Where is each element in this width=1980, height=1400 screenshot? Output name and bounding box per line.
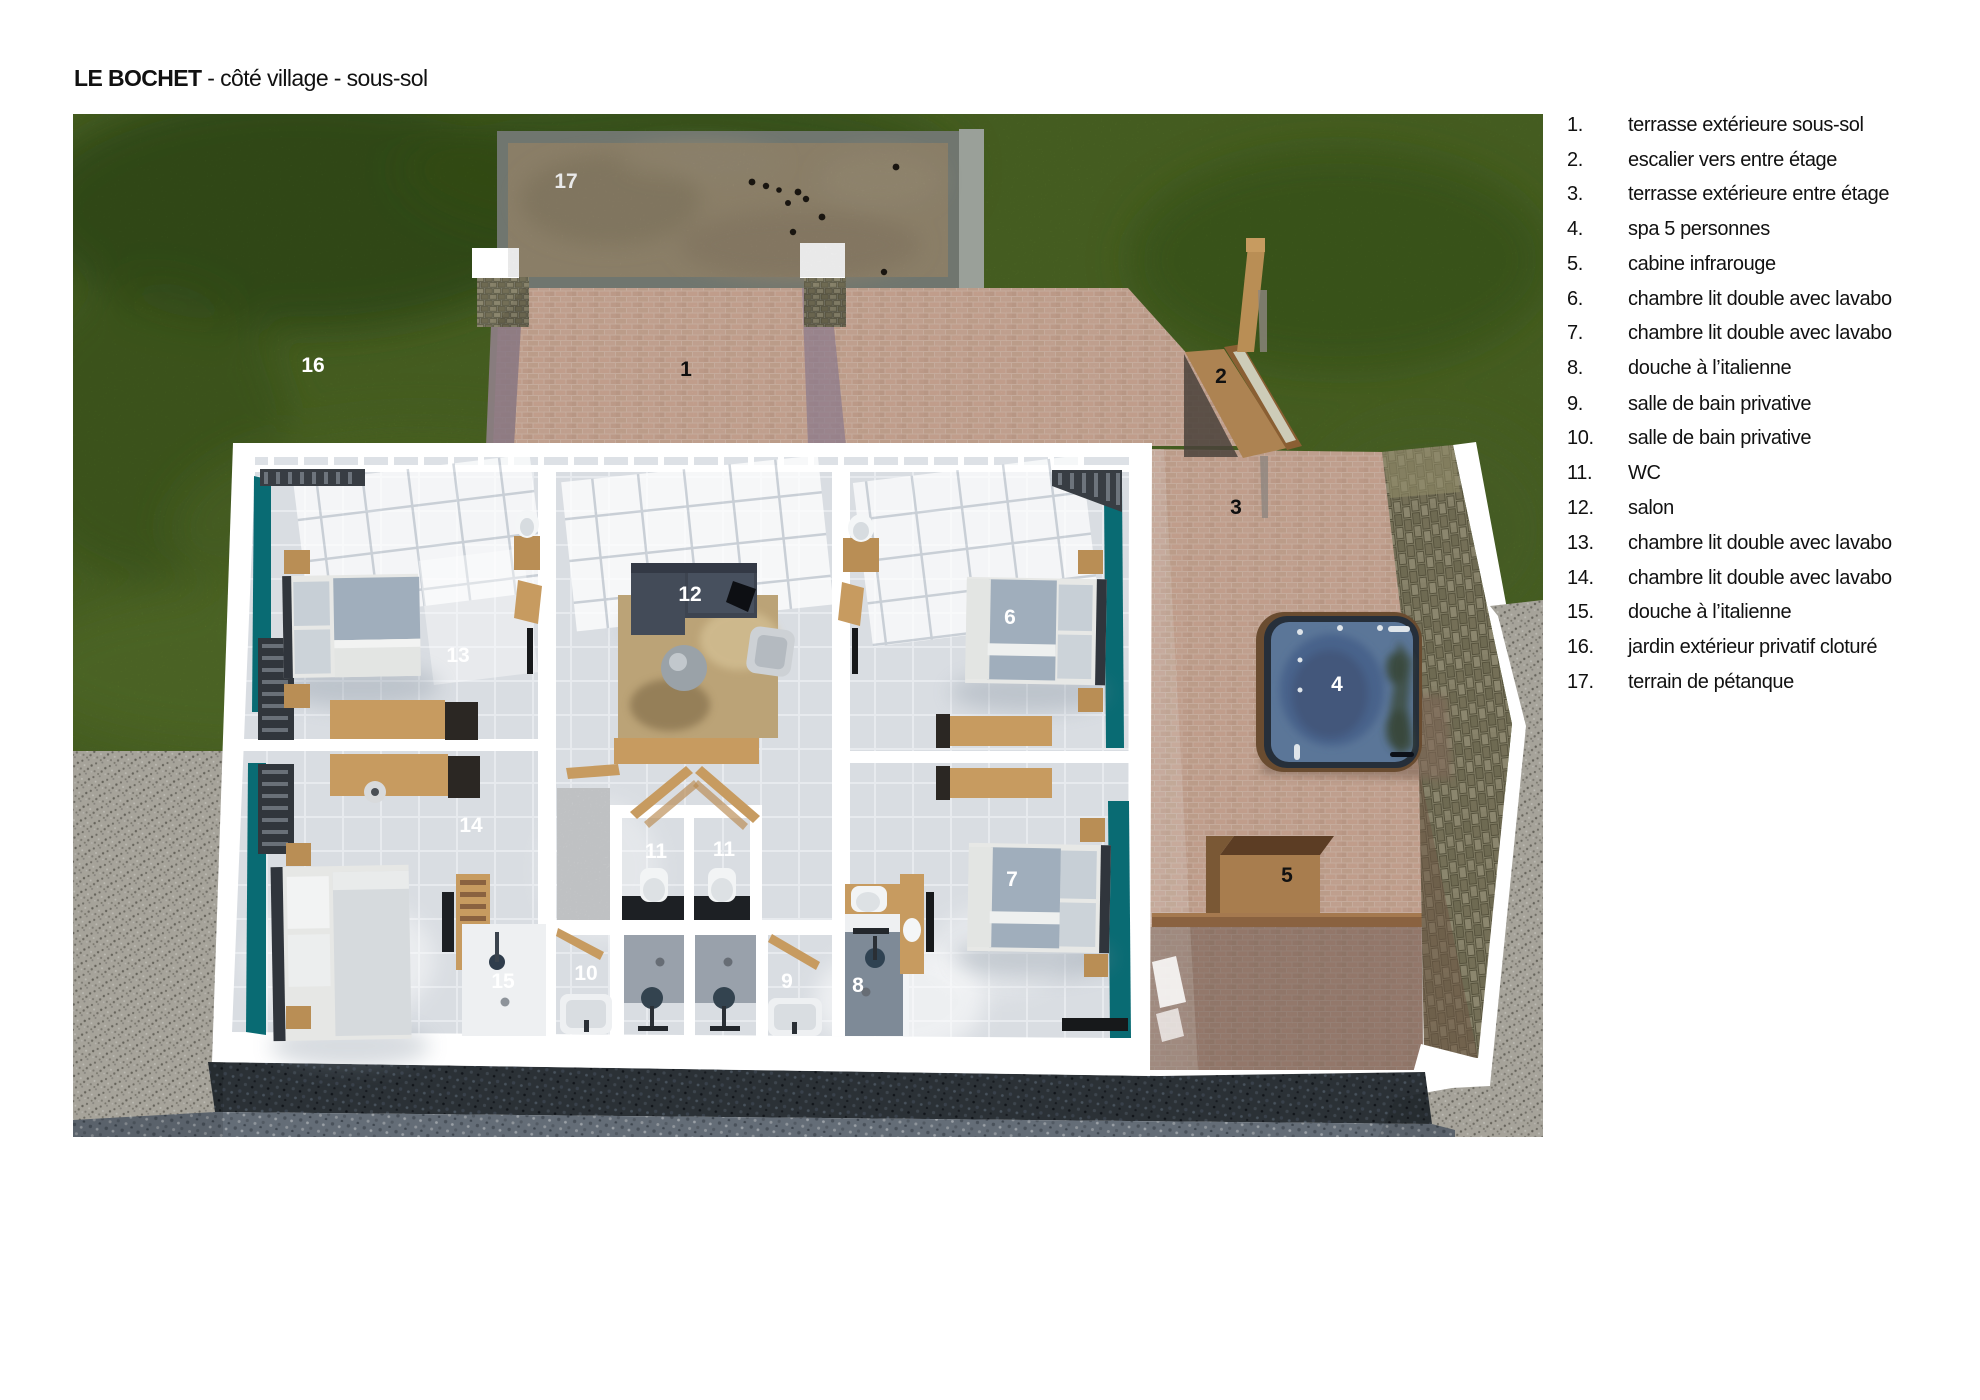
svg-text:8: 8 bbox=[852, 974, 864, 997]
svg-text:9.: 9. bbox=[1567, 393, 1583, 415]
svg-text:13.: 13. bbox=[1567, 532, 1594, 554]
svg-text:6: 6 bbox=[1004, 606, 1016, 629]
svg-text:14: 14 bbox=[459, 814, 483, 837]
svg-text:11: 11 bbox=[713, 838, 736, 861]
svg-text:terrasse extérieure sous-sol: terrasse extérieure sous-sol bbox=[1628, 114, 1864, 136]
svg-text:16.: 16. bbox=[1567, 636, 1594, 658]
svg-text:salle de bain privative: salle de bain privative bbox=[1628, 427, 1811, 449]
svg-text:2.: 2. bbox=[1567, 149, 1583, 171]
svg-text:6.: 6. bbox=[1567, 288, 1583, 310]
svg-text:10.: 10. bbox=[1567, 427, 1594, 449]
svg-text:chambre lit double avec lavabo: chambre lit double avec lavabo bbox=[1628, 567, 1892, 589]
svg-text:9: 9 bbox=[781, 970, 793, 993]
svg-text:14.: 14. bbox=[1567, 567, 1594, 589]
svg-text:spa 5 personnes: spa 5 personnes bbox=[1628, 218, 1770, 240]
svg-text:LE BOCHET - côté village - sou: LE BOCHET - côté village - sous-sol bbox=[74, 65, 428, 91]
svg-text:13: 13 bbox=[446, 644, 469, 667]
svg-text:17.: 17. bbox=[1567, 671, 1594, 693]
svg-text:1.: 1. bbox=[1567, 114, 1583, 136]
svg-text:escalier vers entre étage: escalier vers entre étage bbox=[1628, 149, 1837, 171]
svg-text:chambre lit double avec lavabo: chambre lit double avec lavabo bbox=[1628, 532, 1892, 554]
svg-text:15.: 15. bbox=[1567, 601, 1594, 623]
svg-text:16: 16 bbox=[301, 354, 324, 377]
svg-text:7.: 7. bbox=[1567, 322, 1583, 344]
svg-text:terrasse extérieure entre étag: terrasse extérieure entre étage bbox=[1628, 183, 1889, 205]
svg-text:7: 7 bbox=[1006, 868, 1018, 891]
svg-text:12.: 12. bbox=[1567, 497, 1594, 519]
svg-text:douche à l’italienne: douche à l’italienne bbox=[1628, 601, 1792, 623]
svg-text:5: 5 bbox=[1281, 864, 1293, 887]
svg-text:2: 2 bbox=[1215, 365, 1227, 388]
svg-text:11: 11 bbox=[645, 840, 668, 863]
svg-text:10: 10 bbox=[574, 962, 597, 985]
svg-text:salle de bain privative: salle de bain privative bbox=[1628, 393, 1811, 415]
svg-text:chambre lit double avec lavabo: chambre lit double avec lavabo bbox=[1628, 288, 1892, 310]
svg-text:4: 4 bbox=[1331, 673, 1343, 696]
svg-text:cabine infrarouge: cabine infrarouge bbox=[1628, 253, 1776, 275]
svg-text:chambre lit double avec lavabo: chambre lit double avec lavabo bbox=[1628, 322, 1892, 344]
svg-text:3.: 3. bbox=[1567, 183, 1583, 205]
svg-text:5.: 5. bbox=[1567, 253, 1583, 275]
svg-text:douche à l’italienne: douche à l’italienne bbox=[1628, 357, 1792, 379]
svg-text:terrain de pétanque: terrain de pétanque bbox=[1628, 671, 1794, 693]
svg-text:15: 15 bbox=[491, 970, 515, 993]
svg-text:jardin extérieur privatif clot: jardin extérieur privatif cloturé bbox=[1627, 636, 1877, 658]
svg-text:4.: 4. bbox=[1567, 218, 1583, 240]
svg-text:11.: 11. bbox=[1567, 462, 1592, 484]
svg-text:8.: 8. bbox=[1567, 357, 1583, 379]
svg-text:12: 12 bbox=[678, 583, 701, 606]
svg-text:WC: WC bbox=[1628, 462, 1661, 484]
svg-text:salon: salon bbox=[1628, 497, 1674, 519]
